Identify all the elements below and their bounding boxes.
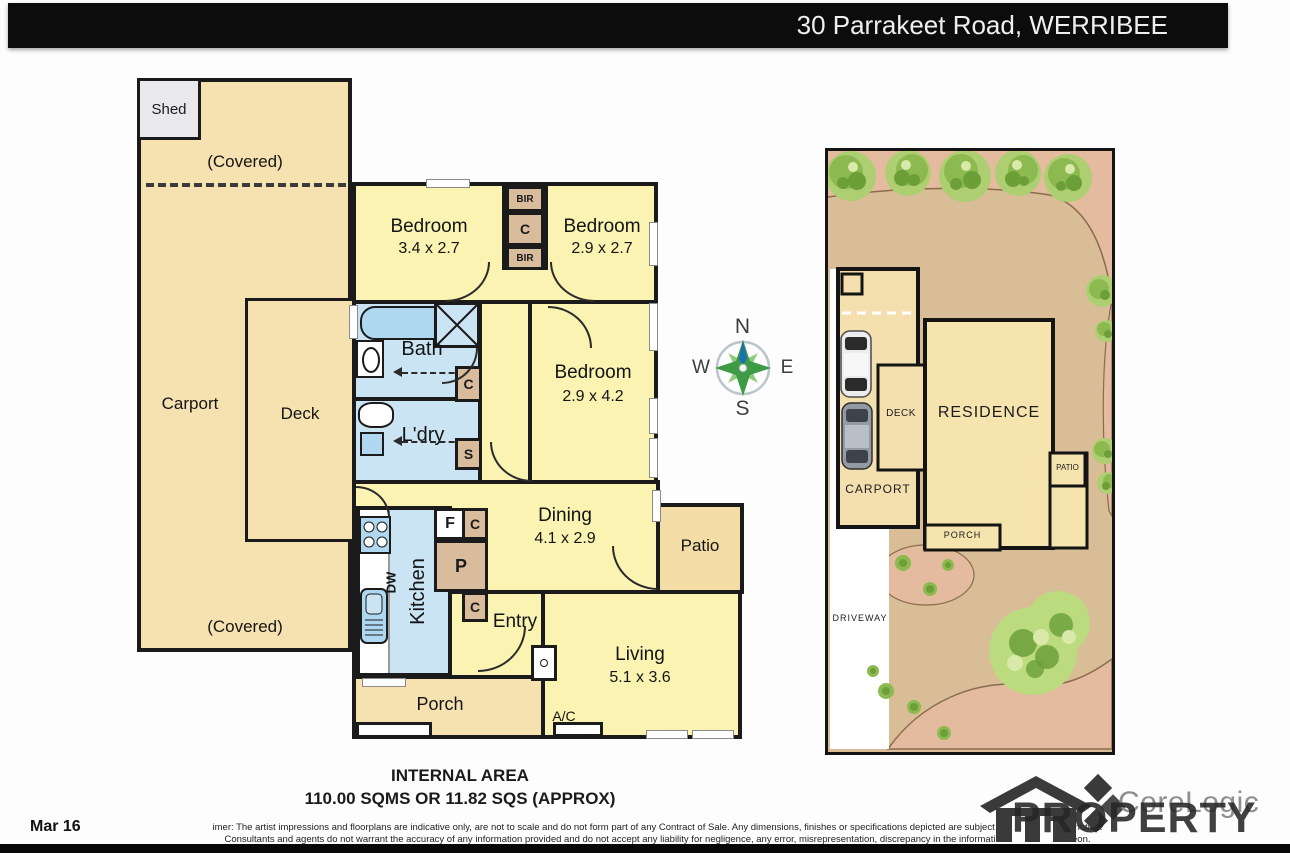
tree-icon [939, 151, 991, 202]
property-watermark: PROPERTY [1012, 794, 1257, 843]
car-icon [842, 403, 872, 469]
siteplan-deck-label: DECK [876, 408, 926, 419]
closet-bir-top: BIR [506, 186, 544, 212]
bedroom3-label: Bedroom [532, 362, 654, 384]
corelogic-logo: CoreLogic PROPERTY [980, 772, 1290, 844]
compass-south-label: S [690, 397, 795, 421]
p-label: P [455, 556, 467, 577]
vanity-icon [356, 340, 384, 378]
covered-bottom-label: (Covered) [140, 617, 350, 637]
date-stamp: Mar 16 [27, 818, 84, 836]
closet-c-kitchen-top: C [462, 508, 488, 540]
ac-step [553, 722, 603, 737]
shed-label: Shed [151, 101, 186, 118]
site-plan-drawing [828, 151, 1112, 752]
covered-top-label: (Covered) [140, 152, 350, 172]
tree-icon [828, 151, 876, 201]
porch-step [356, 722, 432, 738]
siteplan-residence-label: RESIDENCE [925, 404, 1053, 422]
internal-area-value: 110.00 SQMS OR 11.82 SQS (APPROX) [180, 789, 740, 809]
bedroom2-dims: 2.9 x 2.7 [548, 240, 656, 258]
carport-dashed-line [146, 183, 346, 187]
c-label: C [463, 376, 473, 392]
window [646, 730, 688, 739]
living-dims: 5.1 x 3.6 [560, 669, 720, 687]
porch-label: Porch [380, 694, 500, 715]
compass-north-label: N [690, 315, 795, 339]
compass: N W E S [690, 315, 795, 420]
closet-c-top: C [506, 212, 544, 246]
ac-dot-icon [540, 659, 548, 667]
shrub-icon [895, 555, 911, 571]
tree-icon [1044, 154, 1092, 202]
car-icon [841, 331, 871, 397]
shrub-icon [907, 700, 921, 714]
kitchen-label: Kitchen [407, 558, 430, 625]
bedroom1-dims: 3.4 x 2.7 [356, 240, 502, 258]
shrub-icon [878, 683, 894, 699]
slider-arrowhead-icon [393, 436, 402, 446]
pantry: P [434, 540, 488, 592]
window [649, 222, 658, 266]
c-label: C [520, 221, 530, 237]
bedroom1-label: Bedroom [356, 216, 502, 238]
dining-dims: 4.1 x 2.9 [500, 530, 630, 548]
window [649, 303, 658, 351]
closet-s-hall: S [455, 438, 482, 470]
bottom-bar [0, 844, 1290, 853]
dining-label: Dining [500, 505, 630, 527]
tree-icon [995, 151, 1041, 196]
window [649, 398, 658, 434]
bedroom3-dims: 2.9 x 4.2 [532, 388, 654, 406]
sink-icon [360, 588, 388, 644]
site-plan: RESIDENCE DECK CARPORT PORCH PATIO DRIVE… [825, 148, 1115, 755]
f-label: F [445, 515, 455, 533]
siteplan-porch-label: PORCH [925, 530, 1000, 540]
bedroom2-label: Bedroom [548, 216, 656, 238]
compass-west-label: W [690, 357, 712, 379]
internal-area-title: INTERNAL AREA [180, 766, 740, 786]
carport-label: Carport [142, 394, 238, 414]
basin-icon [362, 347, 380, 373]
dishwasher-label: DW [383, 572, 398, 594]
shrub-icon [867, 665, 879, 677]
tree-icon [885, 151, 931, 196]
bir-label: BIR [516, 253, 533, 264]
shrub-icon [937, 726, 951, 740]
driveway-surface [830, 525, 889, 749]
siteplan-residence-box [925, 320, 1053, 548]
slider-arrowhead-icon [393, 367, 402, 377]
stove-icon [359, 516, 391, 554]
deck-label: Deck [250, 404, 350, 424]
ac-unit [531, 645, 557, 681]
compass-east-label: E [776, 357, 798, 379]
living-label: Living [560, 644, 720, 666]
window [362, 678, 406, 687]
closet-c-kitchen-bottom: C [462, 592, 488, 622]
shrub-icon [923, 582, 937, 596]
window [692, 730, 734, 739]
window [426, 179, 470, 188]
shed-room: Shed [137, 78, 201, 140]
window [652, 490, 661, 522]
window [349, 305, 358, 339]
c-label: C [470, 516, 480, 532]
shrub-icon [942, 559, 954, 571]
s-label: S [464, 446, 473, 462]
bir-label: BIR [516, 194, 533, 205]
patio-label: Patio [660, 536, 740, 556]
garden-bed-center [878, 545, 974, 605]
window [649, 438, 658, 478]
closet-bir-bottom: BIR [506, 246, 544, 270]
siteplan-carport-label: CARPORT [838, 482, 918, 496]
compass-rose-icon [713, 338, 773, 398]
floorplan-page: 30 Parrakeet Road, WERRIBEE Shed (Covere… [0, 0, 1290, 853]
siteplan-driveway-label: DRIVEWAY [829, 613, 891, 623]
c-label: C [470, 599, 480, 615]
siteplan-patio-label: PATIO [1050, 463, 1085, 472]
address-title: 30 Parrakeet Road, WERRIBEE [8, 3, 1228, 48]
